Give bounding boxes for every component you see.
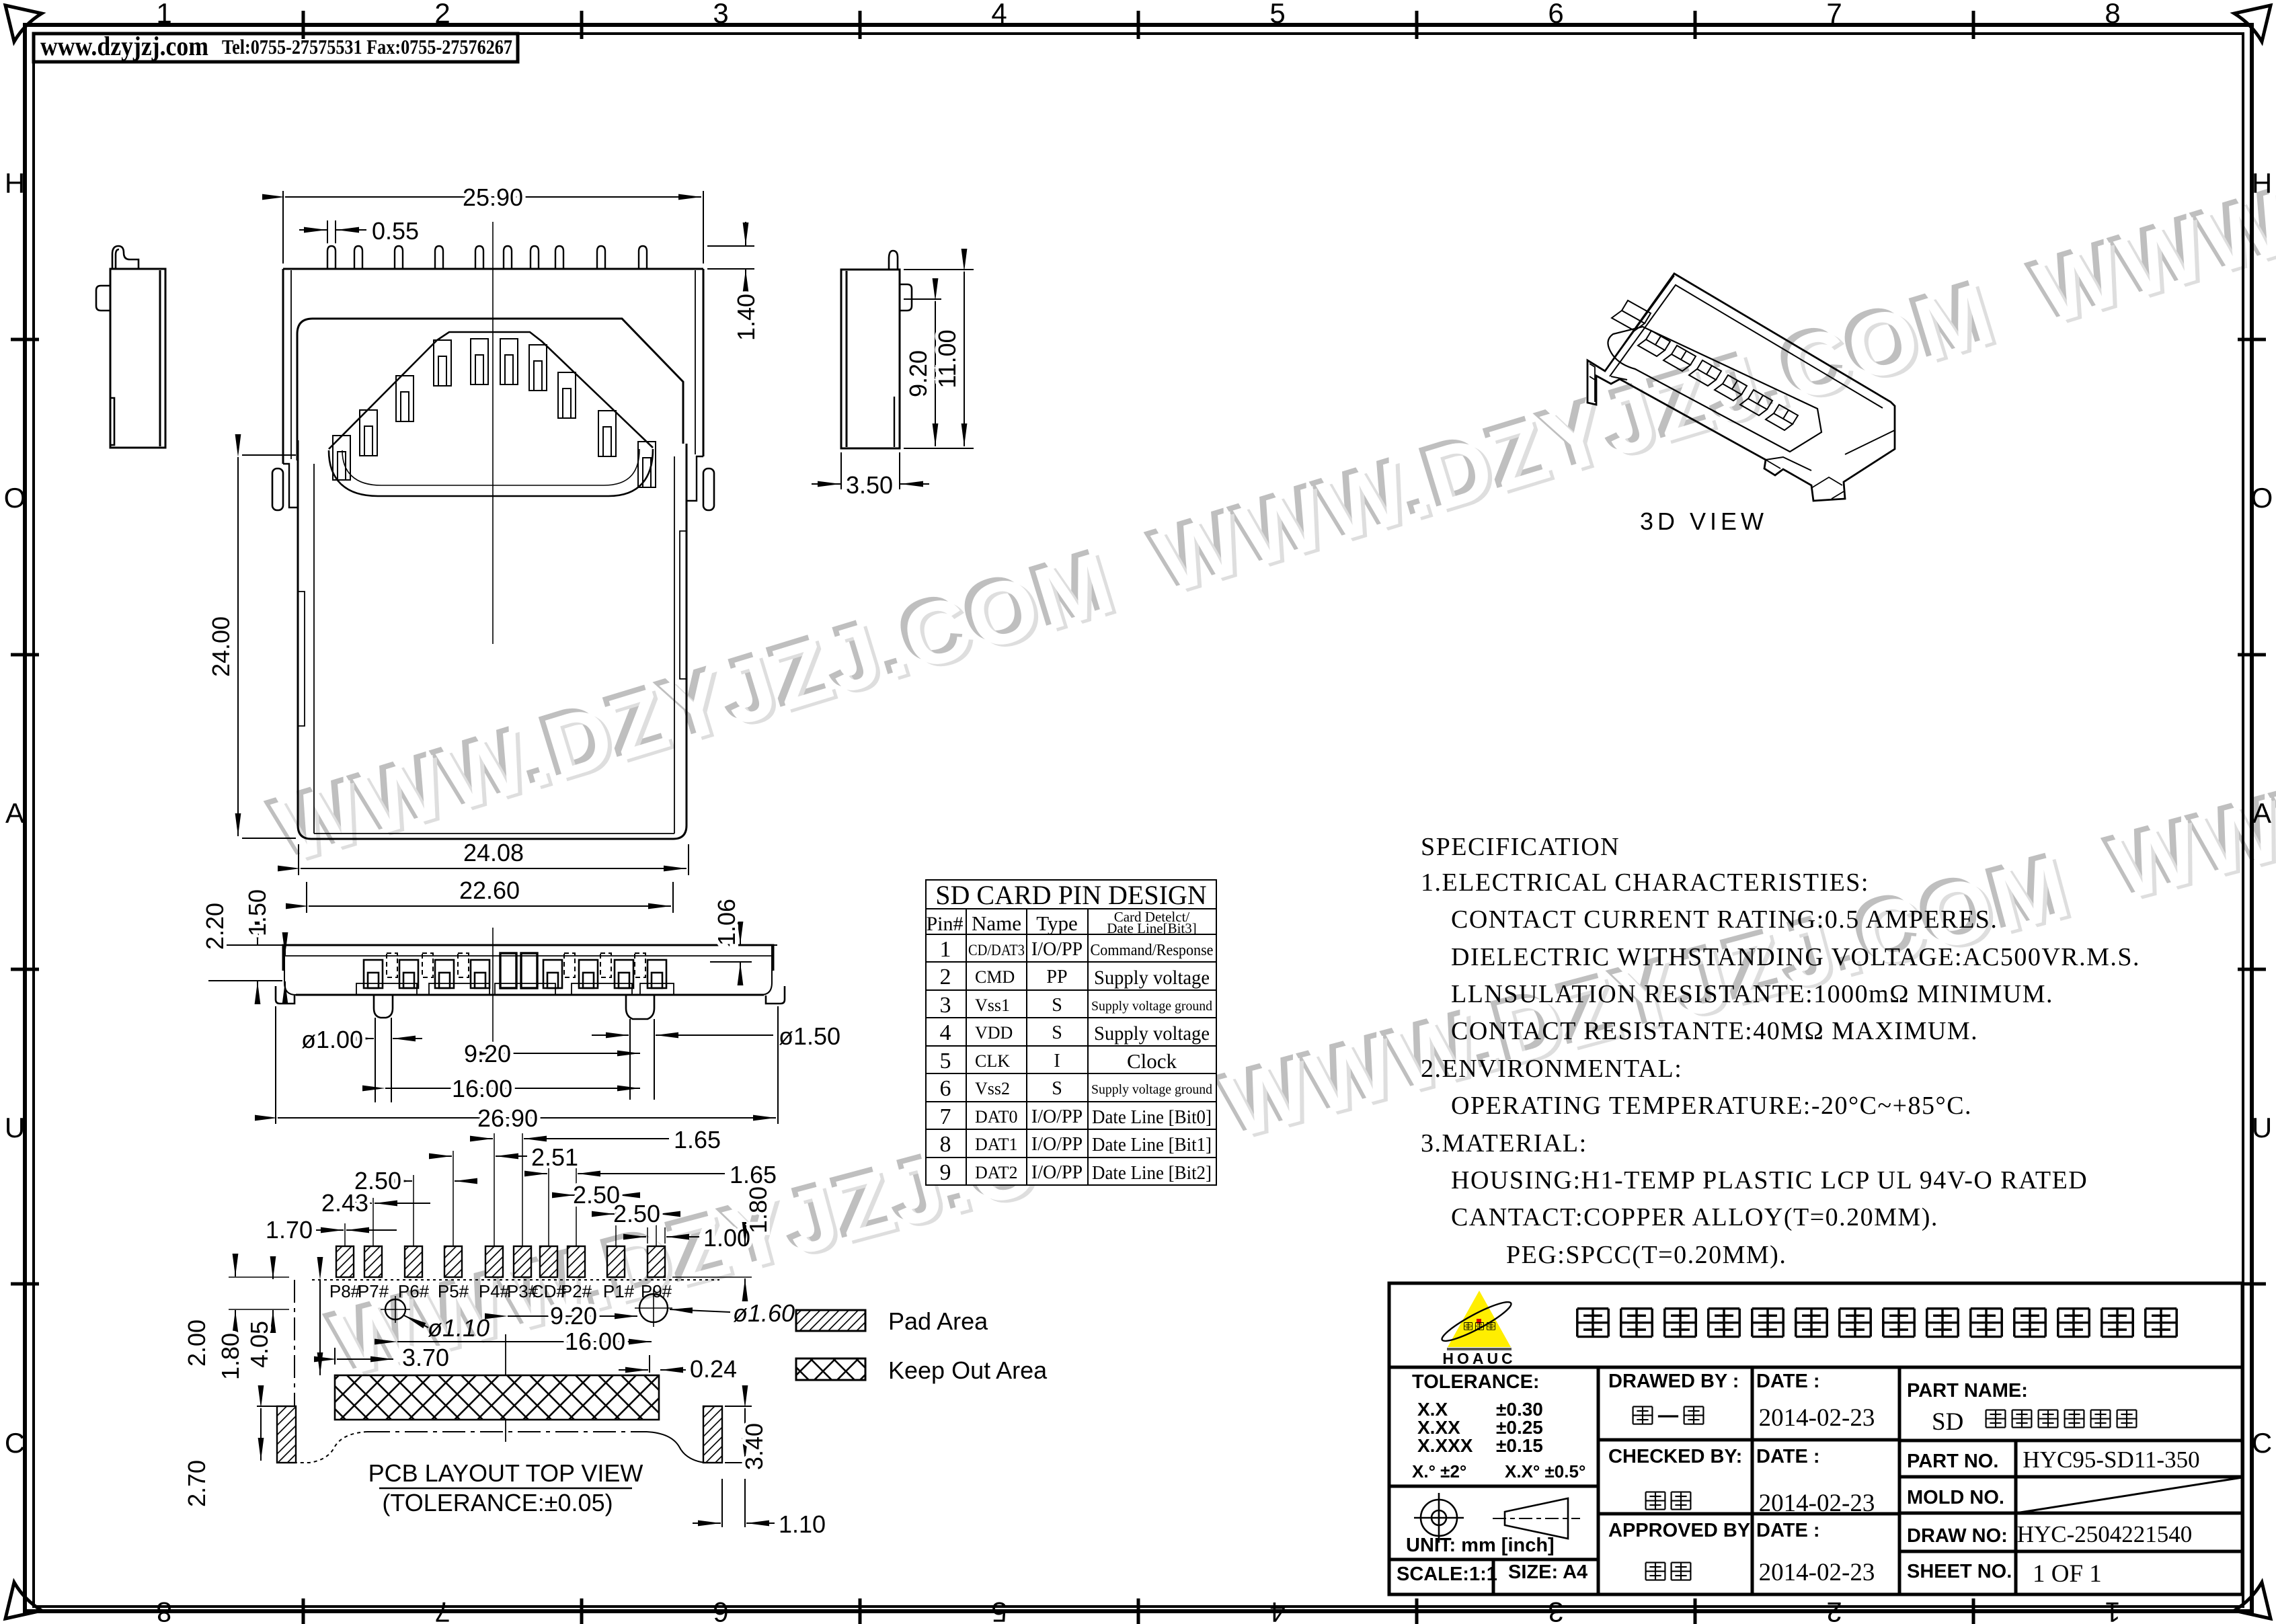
- svg-text:2.20: 2.20: [201, 903, 229, 950]
- svg-text:4: 4: [1269, 1596, 1285, 1624]
- svg-text:2.43: 2.43: [321, 1189, 368, 1217]
- svg-text:1.65: 1.65: [674, 1126, 721, 1153]
- svg-text:CD/DAT3: CD/DAT3: [968, 942, 1025, 959]
- svg-text:SIZE: A4: SIZE: A4: [1508, 1561, 1587, 1583]
- svg-text:PP: PP: [1046, 967, 1067, 987]
- svg-text:7: 7: [434, 1596, 450, 1624]
- svg-text:7: 7: [940, 1104, 951, 1129]
- svg-text:Pad Area: Pad Area: [888, 1307, 988, 1335]
- svg-text:24.00: 24.00: [207, 616, 235, 677]
- svg-text:±0.15: ±0.15: [1496, 1435, 1543, 1456]
- svg-text:S: S: [1052, 995, 1062, 1016]
- svg-text:6: 6: [940, 1076, 951, 1101]
- svg-text:2: 2: [434, 0, 450, 29]
- svg-text:3.70: 3.70: [402, 1344, 449, 1371]
- svg-text:Clock: Clock: [1127, 1049, 1177, 1073]
- svg-text:DRAWED BY :: DRAWED BY :: [1608, 1371, 1739, 1392]
- svg-text:P5#: P5#: [438, 1281, 469, 1301]
- svg-text:Date Line [Bit1]: Date Line [Bit1]: [1092, 1135, 1212, 1155]
- svg-text:A: A: [2252, 797, 2271, 829]
- svg-text:DIELECTRIC WITHSTANDING VOLTAG: DIELECTRIC WITHSTANDING VOLTAGE:AC500VR.…: [1451, 943, 2140, 971]
- svg-text:I/O/PP: I/O/PP: [1031, 939, 1083, 960]
- svg-text:DRAW NO:: DRAW NO:: [1907, 1525, 2008, 1547]
- svg-text:3D VIEW: 3D VIEW: [1640, 507, 1768, 535]
- svg-text:P9#: P9#: [641, 1281, 672, 1301]
- svg-text:H: H: [5, 167, 25, 199]
- svg-text:S: S: [1052, 1078, 1062, 1099]
- svg-text:H: H: [2252, 167, 2272, 199]
- svg-text:2: 2: [1826, 1596, 1842, 1624]
- svg-text:1 OF 1: 1 OF 1: [2033, 1560, 2102, 1588]
- svg-text:2.00: 2.00: [183, 1319, 210, 1367]
- svg-text:2: 2: [940, 965, 951, 989]
- svg-text:1.80: 1.80: [217, 1333, 244, 1380]
- svg-text:1.10: 1.10: [779, 1510, 826, 1538]
- svg-text:SPECIFICATION: SPECIFICATION: [1421, 833, 1620, 861]
- svg-text:O: O: [2251, 482, 2273, 514]
- svg-text:Supply voltage: Supply voltage: [1094, 1022, 1210, 1045]
- svg-text:I/O/PP: I/O/PP: [1031, 1134, 1083, 1155]
- svg-text:www.dzyjzj.com: www.dzyjzj.com: [40, 31, 208, 61]
- svg-text:I: I: [1054, 1051, 1060, 1071]
- svg-text:Command/Response: Command/Response: [1091, 942, 1214, 959]
- svg-text:Type: Type: [1036, 911, 1078, 935]
- svg-text:(TOLERANCE:±0.05): (TOLERANCE:±0.05): [382, 1489, 613, 1516]
- svg-text:C: C: [2252, 1427, 2272, 1459]
- svg-text:5: 5: [1269, 0, 1285, 29]
- svg-text:1: 1: [940, 937, 951, 962]
- svg-text:1.50: 1.50: [243, 889, 271, 936]
- svg-text:I/O/PP: I/O/PP: [1031, 1162, 1083, 1183]
- svg-text:2014-02-23: 2014-02-23: [1759, 1404, 1875, 1432]
- svg-text:3.50: 3.50: [846, 471, 893, 499]
- svg-text:PEG:SPCC(T=0.20MM).: PEG:SPCC(T=0.20MM).: [1506, 1241, 1787, 1269]
- svg-text:Vss2: Vss2: [975, 1079, 1010, 1098]
- svg-text:1: 1: [156, 0, 171, 29]
- svg-text:11.00: 11.00: [933, 329, 961, 388]
- svg-text:9.20: 9.20: [464, 1040, 511, 1067]
- svg-text:DATE :: DATE :: [1756, 1446, 1820, 1467]
- svg-text:HYC-2504221540: HYC-2504221540: [2017, 1521, 2193, 1547]
- svg-text:4: 4: [991, 0, 1007, 29]
- svg-text:PCB LAYOUT TOP VIEW: PCB LAYOUT TOP VIEW: [368, 1459, 643, 1487]
- svg-text:22.60: 22.60: [459, 877, 520, 904]
- svg-text:9.20: 9.20: [550, 1302, 597, 1330]
- svg-text:X.X° ±0.5°: X.X° ±0.5°: [1505, 1461, 1585, 1481]
- svg-text:SHEET NO.: SHEET NO.: [1907, 1561, 2012, 1582]
- svg-text:6: 6: [1548, 0, 1563, 29]
- svg-text:2.50: 2.50: [613, 1200, 660, 1227]
- svg-text:ø1.60: ø1.60: [733, 1299, 795, 1327]
- svg-text:3.MATERIAL:: 3.MATERIAL:: [1421, 1129, 1587, 1158]
- svg-text:Vss1: Vss1: [975, 996, 1010, 1015]
- svg-text:ø1.10: ø1.10: [428, 1314, 489, 1342]
- svg-text:0.24: 0.24: [690, 1355, 737, 1383]
- svg-text:1.ELECTRICAL CHARACTERISTIES:: 1.ELECTRICAL CHARACTERISTIES:: [1421, 868, 1869, 897]
- svg-text:4: 4: [940, 1020, 951, 1045]
- svg-text:SD: SD: [1932, 1408, 1963, 1436]
- svg-text:HOUSING:H1-TEMP PLASTIC LCP UL: HOUSING:H1-TEMP PLASTIC LCP UL 94V-O RAT…: [1451, 1166, 2088, 1194]
- svg-text:CONTACT CURRENT RATING:0.5 AMP: CONTACT CURRENT RATING:0.5 AMPERES.: [1451, 905, 1998, 934]
- svg-text:VDD: VDD: [975, 1023, 1013, 1043]
- svg-text:I/O/PP: I/O/PP: [1031, 1106, 1083, 1127]
- svg-text:3: 3: [713, 0, 728, 29]
- svg-text:1.80: 1.80: [744, 1186, 772, 1233]
- svg-text:P2#: P2#: [561, 1281, 592, 1301]
- svg-text:A: A: [5, 797, 24, 829]
- svg-text:DAT0: DAT0: [975, 1107, 1018, 1127]
- svg-text:P6#: P6#: [398, 1281, 430, 1301]
- svg-text:U: U: [2252, 1112, 2272, 1143]
- svg-text:9: 9: [940, 1160, 951, 1185]
- svg-text:1.65: 1.65: [730, 1161, 777, 1188]
- svg-text:16.00: 16.00: [452, 1075, 512, 1102]
- svg-text:PART NO.: PART NO.: [1907, 1451, 1998, 1472]
- svg-text:Date Line [Bit0]: Date Line [Bit0]: [1092, 1107, 1212, 1128]
- svg-text:5: 5: [991, 1596, 1007, 1624]
- svg-text:Date Line [Bit2]: Date Line [Bit2]: [1092, 1163, 1212, 1184]
- svg-text:4.05: 4.05: [245, 1321, 273, 1368]
- svg-text:CLK: CLK: [975, 1051, 1010, 1071]
- svg-text:CHECKED BY:: CHECKED BY:: [1608, 1446, 1742, 1467]
- svg-text:1.00: 1.00: [703, 1224, 750, 1252]
- svg-text:MOLD NO.: MOLD NO.: [1907, 1487, 2004, 1508]
- svg-text:DAT1: DAT1: [975, 1135, 1018, 1154]
- svg-text:HOAUC: HOAUC: [1442, 1350, 1516, 1367]
- svg-text:C: C: [5, 1427, 25, 1459]
- svg-text:SCALE:1:1: SCALE:1:1: [1397, 1564, 1497, 1585]
- svg-text:2.70: 2.70: [183, 1460, 210, 1507]
- svg-text:DATE :: DATE :: [1756, 1371, 1820, 1392]
- svg-text:24.08: 24.08: [463, 839, 524, 866]
- svg-text:1.70: 1.70: [266, 1216, 313, 1244]
- svg-text:Name: Name: [972, 911, 1021, 935]
- svg-text:DAT2: DAT2: [975, 1163, 1018, 1182]
- svg-text:2014-02-23: 2014-02-23: [1759, 1490, 1875, 1517]
- svg-text:CMD: CMD: [975, 967, 1015, 987]
- svg-text:Keep Out Area: Keep Out Area: [888, 1356, 1048, 1384]
- svg-text:TOLERANCE:: TOLERANCE:: [1412, 1371, 1540, 1393]
- svg-text:S: S: [1052, 1022, 1062, 1043]
- svg-text:OPERATING TEMPERATURE:-20°C~+8: OPERATING TEMPERATURE:-20°C~+85°C.: [1451, 1092, 1972, 1120]
- svg-text:Supply voltage: Supply voltage: [1094, 967, 1210, 989]
- svg-text:16.00: 16.00: [565, 1328, 625, 1355]
- svg-text:25.90: 25.90: [463, 184, 523, 211]
- svg-text:7: 7: [1826, 0, 1842, 29]
- svg-text:LLNSULATION RESISTANTE:1000mΩ: LLNSULATION RESISTANTE:1000mΩ MINIMUM.: [1451, 980, 2053, 1008]
- svg-text:X.° ±2°: X.° ±2°: [1412, 1461, 1466, 1481]
- svg-text:U: U: [5, 1112, 25, 1143]
- svg-text:P1#: P1#: [603, 1281, 635, 1301]
- svg-text:Supply voltage ground: Supply voltage ground: [1091, 1082, 1212, 1097]
- svg-text:2.51: 2.51: [531, 1143, 578, 1171]
- svg-text:ø1.50: ø1.50: [779, 1022, 840, 1050]
- svg-text:Pin#: Pin#: [926, 913, 963, 935]
- svg-text:P8#: P8#: [329, 1281, 361, 1301]
- svg-text:1.06: 1.06: [713, 899, 740, 946]
- svg-text:Date Line[Bit3]: Date Line[Bit3]: [1107, 920, 1197, 936]
- svg-text:P4#: P4#: [479, 1281, 510, 1301]
- svg-text:2.ENVIRONMENTAL:: 2.ENVIRONMENTAL:: [1421, 1055, 1682, 1083]
- svg-text:SD CARD PIN DESIGN: SD CARD PIN DESIGN: [935, 880, 1206, 910]
- svg-text:8: 8: [940, 1132, 951, 1157]
- svg-text:0.55: 0.55: [372, 217, 419, 245]
- svg-text:8: 8: [2105, 0, 2120, 29]
- svg-text:6: 6: [713, 1596, 728, 1624]
- svg-text:2014-02-23: 2014-02-23: [1759, 1559, 1875, 1586]
- svg-text:5: 5: [940, 1049, 951, 1073]
- svg-text:O: O: [4, 482, 26, 514]
- svg-text:DATE :: DATE :: [1756, 1520, 1820, 1541]
- svg-text:UNIT: mm [inch]: UNIT: mm [inch]: [1406, 1535, 1555, 1556]
- svg-text:CANTACT:COPPER ALLOY(T=0.20MM): CANTACT:COPPER ALLOY(T=0.20MM).: [1451, 1203, 1938, 1231]
- svg-text:P7#: P7#: [358, 1281, 389, 1301]
- svg-text:3: 3: [940, 993, 951, 1018]
- svg-text:PART NAME:: PART NAME:: [1907, 1380, 2028, 1402]
- svg-text:ø1.00: ø1.00: [301, 1026, 363, 1053]
- svg-text:1.40: 1.40: [732, 294, 760, 341]
- svg-text:Supply voltage ground: Supply voltage ground: [1091, 999, 1212, 1014]
- svg-text:3: 3: [1548, 1596, 1563, 1624]
- svg-text:26.90: 26.90: [477, 1104, 538, 1132]
- svg-text:3.40: 3.40: [740, 1423, 768, 1470]
- svg-text:9.20: 9.20: [904, 350, 932, 397]
- svg-text:X.XXX: X.XXX: [1417, 1435, 1473, 1456]
- svg-text:Tel:0755-27575531 Fax:0755-27: Tel:0755-27575531 Fax:0755-27576267: [222, 35, 512, 58]
- svg-text:8: 8: [156, 1596, 171, 1624]
- svg-text:CONTACT RESISTANTE:40MΩ MAXIMU: CONTACT RESISTANTE:40MΩ MAXIMUM.: [1451, 1017, 1978, 1045]
- svg-text:APPROVED BY:: APPROVED BY:: [1608, 1520, 1756, 1541]
- svg-text:HYC95-SD11-350: HYC95-SD11-350: [2023, 1447, 2199, 1473]
- svg-text:1: 1: [2105, 1596, 2120, 1624]
